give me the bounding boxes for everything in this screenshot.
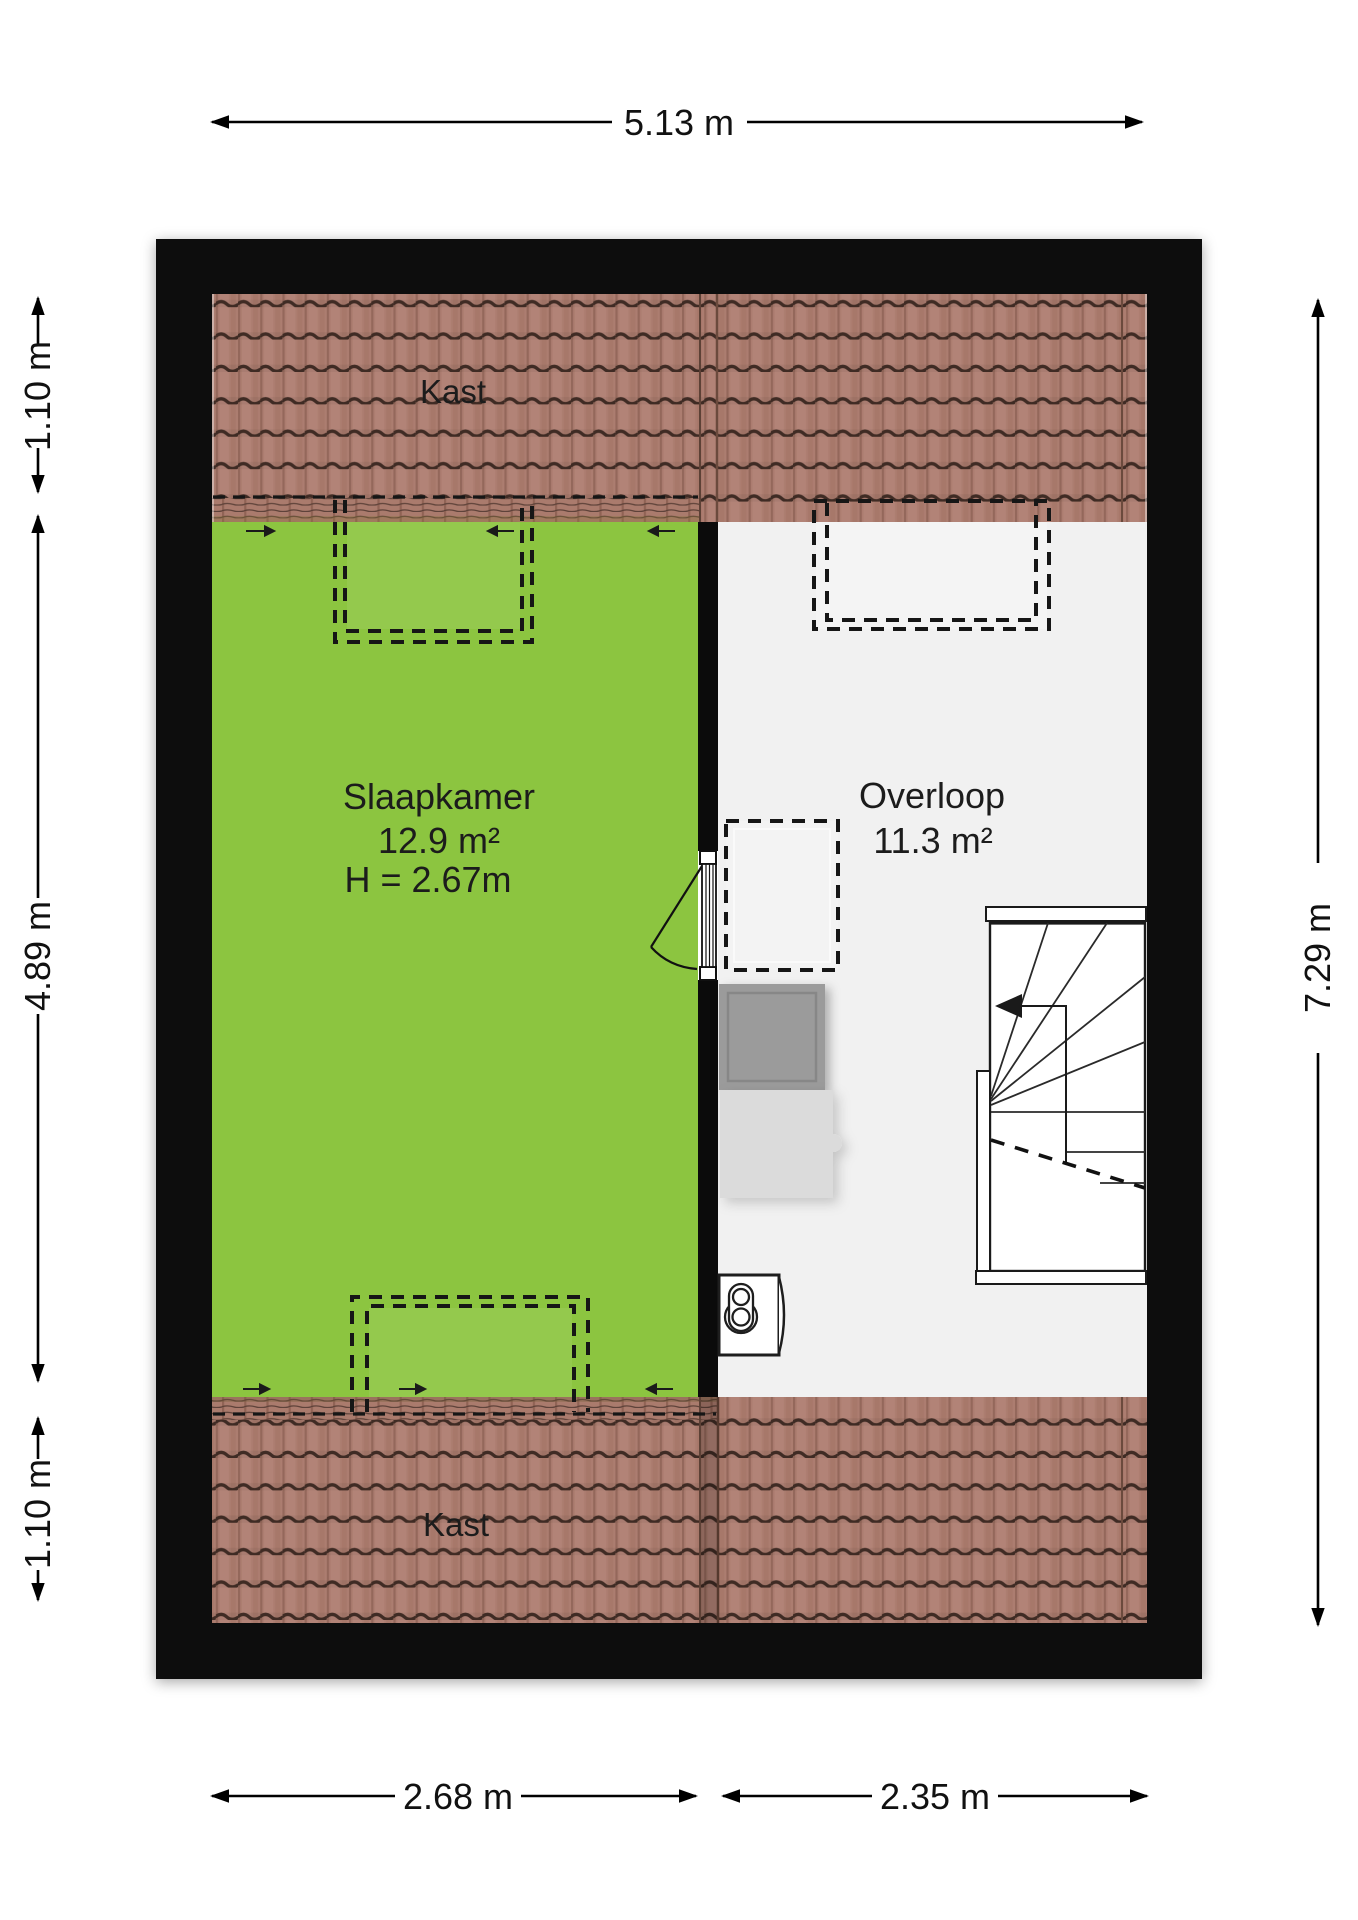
svg-text:1.10 m: 1.10 m (17, 341, 58, 451)
svg-text:11.3 m²: 11.3 m² (873, 820, 992, 861)
svg-text:Slaapkamer: Slaapkamer (343, 776, 535, 817)
svg-text:12.9 m²: 12.9 m² (378, 820, 500, 861)
svg-text:2.35 m: 2.35 m (880, 1776, 990, 1817)
svg-text:Overloop: Overloop (859, 775, 1005, 816)
svg-text:Kast: Kast (420, 373, 486, 410)
svg-text:H = 2.67m: H = 2.67m (344, 859, 511, 900)
svg-text:4.89 m: 4.89 m (17, 901, 58, 1011)
svg-text:1.10 m: 1.10 m (17, 1459, 58, 1569)
svg-text:7.29 m: 7.29 m (1297, 903, 1338, 1013)
svg-text:2.68 m: 2.68 m (403, 1776, 513, 1817)
svg-text:5.13 m: 5.13 m (624, 102, 734, 143)
svg-text:Kast: Kast (423, 1506, 489, 1543)
